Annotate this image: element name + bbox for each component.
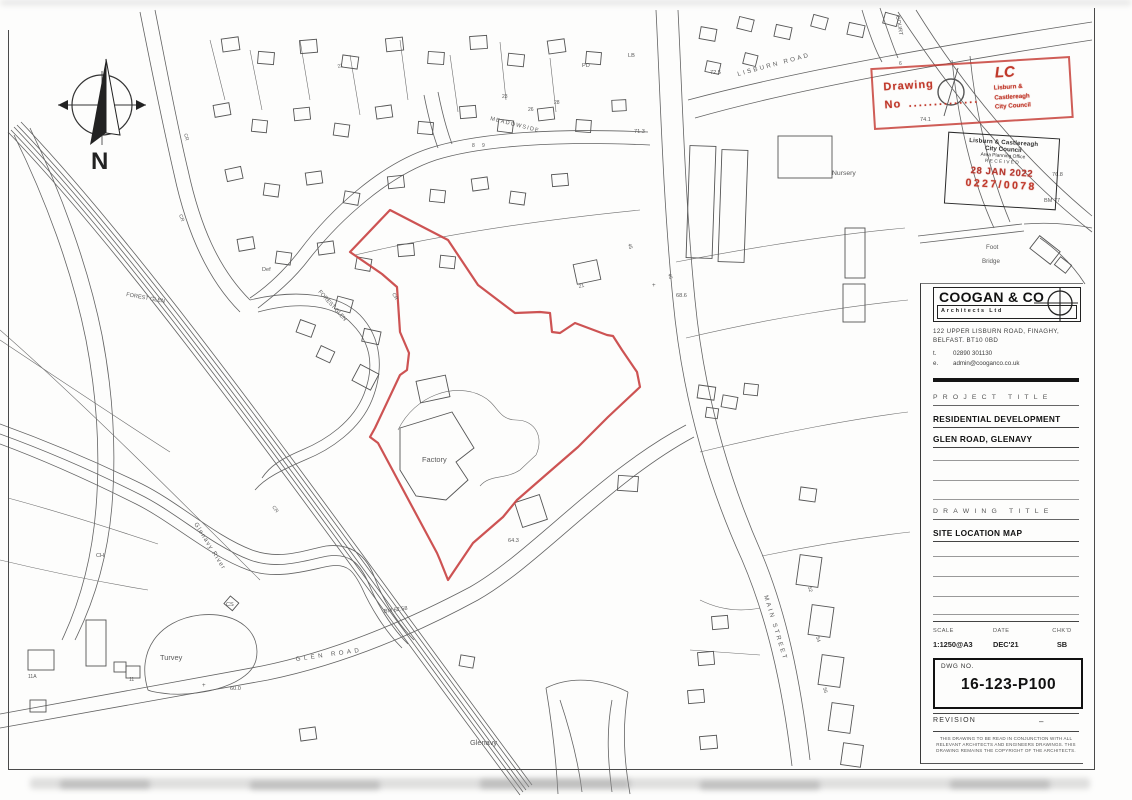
section-divider [933, 621, 1079, 622]
stamp-drawing-label: Drawing [883, 78, 934, 93]
firm-address-line1: 122 UPPER LISBURN ROAD, FINAGHY, [933, 328, 1059, 335]
scan-artifact [60, 780, 150, 789]
map-label-9: 9 [482, 143, 485, 149]
project-title-header: PROJECT TITLE [933, 394, 1079, 406]
dwg-no-value: 16-123-P100 [961, 676, 1056, 694]
sheet-border-left [8, 30, 9, 770]
council-name-line3: City Council [995, 101, 1032, 113]
firm-logo-box: COOGAN & CO Architects Ltd [933, 287, 1081, 322]
scan-artifact [250, 781, 380, 790]
revision-value: – [1039, 717, 1043, 726]
north-needle-icon [90, 59, 106, 145]
drawing-title: SITE LOCATION MAP [933, 528, 1079, 542]
map-label-foot: Foot [986, 244, 999, 251]
project-title-line1: RESIDENTIAL DEVELOPMENT [933, 414, 1079, 428]
email-value: admin@cooganco.co.uk [953, 360, 1019, 367]
map-label-46: 46 [666, 273, 673, 280]
map-label-turvey: Turvey [160, 653, 183, 662]
scan-artifact [700, 781, 820, 790]
scan-artifact [950, 780, 1050, 789]
date-label: DATE [993, 628, 1045, 634]
stamp-no-label: No [884, 98, 901, 111]
firm-subtitle: Architects Ltd [941, 308, 1003, 314]
map-label-plus-2: + [202, 682, 206, 689]
map-label-72-5: 72.5 [710, 70, 721, 76]
blank-line [933, 499, 1079, 500]
council-drawing-no-stamp: Drawing No .............. LC Lisburn & C… [870, 56, 1073, 130]
map-label-cr-1: CR [182, 133, 190, 142]
map-label-26: 26 [528, 107, 534, 113]
map-label-bridge: Bridge [982, 258, 1000, 265]
dwg-no-label: DWG NO. [941, 663, 974, 670]
map-field-boundaries [0, 40, 910, 655]
divider-rule [933, 378, 1079, 382]
map-label-glenavy-village: Glenavy [470, 738, 497, 747]
map-label-11a: 11A [28, 674, 37, 680]
map-label-21: 21 [337, 63, 344, 70]
map-label-factory: Factory [422, 455, 447, 464]
map-label-ch: CH [96, 553, 104, 559]
map-label-lb: LB [628, 53, 635, 59]
firm-name: COOGAN & CO [939, 289, 1044, 305]
map-label-cr-3: CR [270, 505, 279, 515]
site-boundary [350, 210, 640, 580]
map-label-plus-1: + [652, 282, 656, 289]
council-name: Lisburn & Castlereagh City Council [993, 81, 1031, 112]
dwg-number-box: DWG NO. 16-123-P100 [933, 658, 1083, 709]
blank-line [933, 614, 1079, 615]
drawing-sheet: N MEADOWSIDE LISBURN ROAD COURT MAIN STR… [0, 0, 1132, 800]
phone-value: 02890 301130 [953, 350, 992, 357]
west-arrowhead-icon [58, 100, 68, 110]
email-label: e. [933, 360, 938, 367]
copyright-disclaimer: THIS DRAWING TO BE READ IN CONJUNCTION W… [933, 736, 1079, 754]
blank-line [933, 480, 1079, 481]
chkd-label: CHK'D [1045, 628, 1079, 634]
north-label: N [91, 148, 108, 175]
map-label-nursery: Nursery [832, 170, 856, 177]
scan-artifact [0, 0, 1132, 5]
map-label-23: 23 [502, 94, 508, 100]
title-block: COOGAN & CO Architects Ltd 122 UPPER LIS… [920, 283, 1083, 764]
council-logo-icon: LC [994, 63, 1015, 81]
map-label-60-0: 60.0 [230, 686, 241, 692]
map-label-54: 54 [814, 636, 821, 643]
blank-line [933, 596, 1079, 597]
map-label-pd: PD [582, 63, 590, 69]
blank-line [933, 460, 1079, 461]
drawing-title-header: DRAWING TITLE [933, 508, 1079, 520]
map-label-forest-glen: FOREST GLEN [126, 292, 166, 305]
map-label-11: 11 [129, 677, 134, 683]
map-label-56: 56 [821, 687, 828, 694]
map-label-glen-road: GLEN ROAD [295, 647, 362, 663]
map-label-52: 52 [806, 586, 813, 593]
map-label-68-6: 68.6 [676, 293, 687, 299]
section-divider [933, 713, 1079, 714]
firm-logo-icon [1034, 288, 1078, 321]
map-label-8: 8 [472, 143, 475, 149]
council-received-stamp: Lisburn & Castlereagh City Council Area … [944, 132, 1060, 211]
revision-label: REVISION [933, 717, 976, 724]
chkd-value: SB [1045, 640, 1079, 649]
map-label-cs: CS [226, 602, 234, 608]
section-divider [933, 731, 1079, 732]
east-arrowhead-icon [136, 100, 146, 110]
sheet-border-bottom [8, 769, 1094, 770]
map-label-64-3: 64.3 [508, 538, 519, 544]
blank-line [933, 556, 1079, 557]
scan-artifact [480, 779, 630, 789]
blank-line [933, 576, 1079, 577]
date-value: DEC'21 [993, 640, 1045, 649]
stamp-dotted-line: .............. [908, 94, 979, 110]
meta-value-row: 1:1250@A3 DEC'21 SB [933, 640, 1079, 649]
firm-address-line2: BELFAST. BT10 0BD [933, 337, 998, 344]
map-label-21b: 21 [578, 283, 585, 290]
meta-header-row: SCALE DATE CHK'D [933, 628, 1079, 634]
scale-label: SCALE [933, 628, 993, 634]
map-label-28: 28 [554, 100, 560, 106]
map-label-forest-glen-2: FOREST GLEN [317, 289, 348, 322]
phone-label: t. [933, 350, 936, 357]
map-label-45: 45 [626, 243, 633, 250]
map-label-71-3: 71.3 [634, 129, 645, 135]
map-label-cr-2: CR [177, 214, 185, 223]
sheet-border-right [1094, 8, 1095, 770]
project-title-line2: GLEN ROAD, GLENAVY [933, 434, 1079, 448]
scale-value: 1:1250@A3 [933, 640, 993, 649]
map-label-def: Def [262, 267, 271, 273]
north-arrow: N [58, 59, 146, 175]
